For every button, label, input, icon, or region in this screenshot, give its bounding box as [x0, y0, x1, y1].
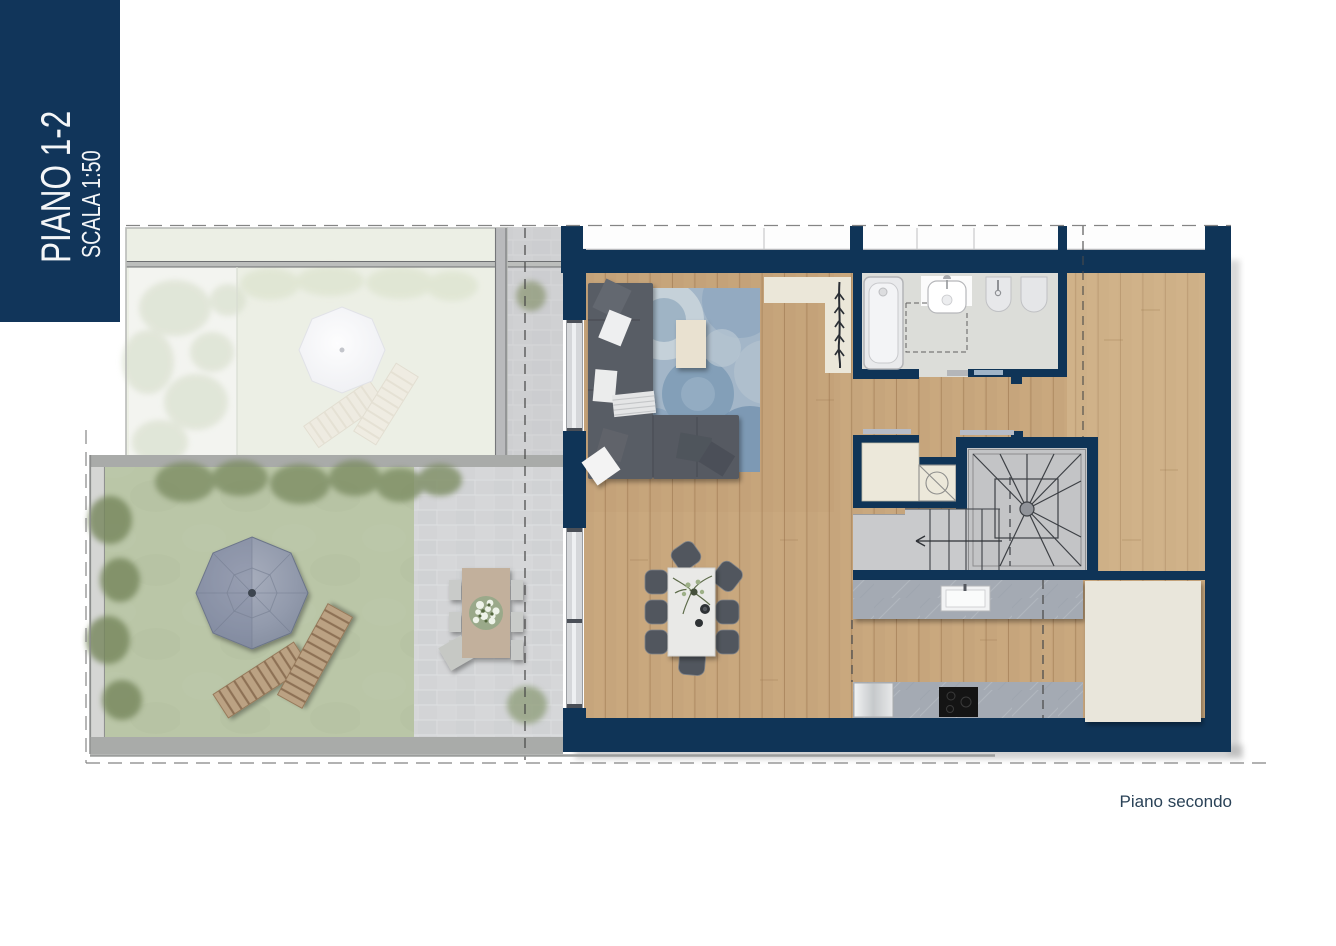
- svg-text:Piano secondo: Piano secondo: [1120, 792, 1232, 811]
- svg-text:SCALA 1:50: SCALA 1:50: [76, 150, 105, 258]
- svg-text:PIANO 1-2: PIANO 1-2: [32, 111, 80, 263]
